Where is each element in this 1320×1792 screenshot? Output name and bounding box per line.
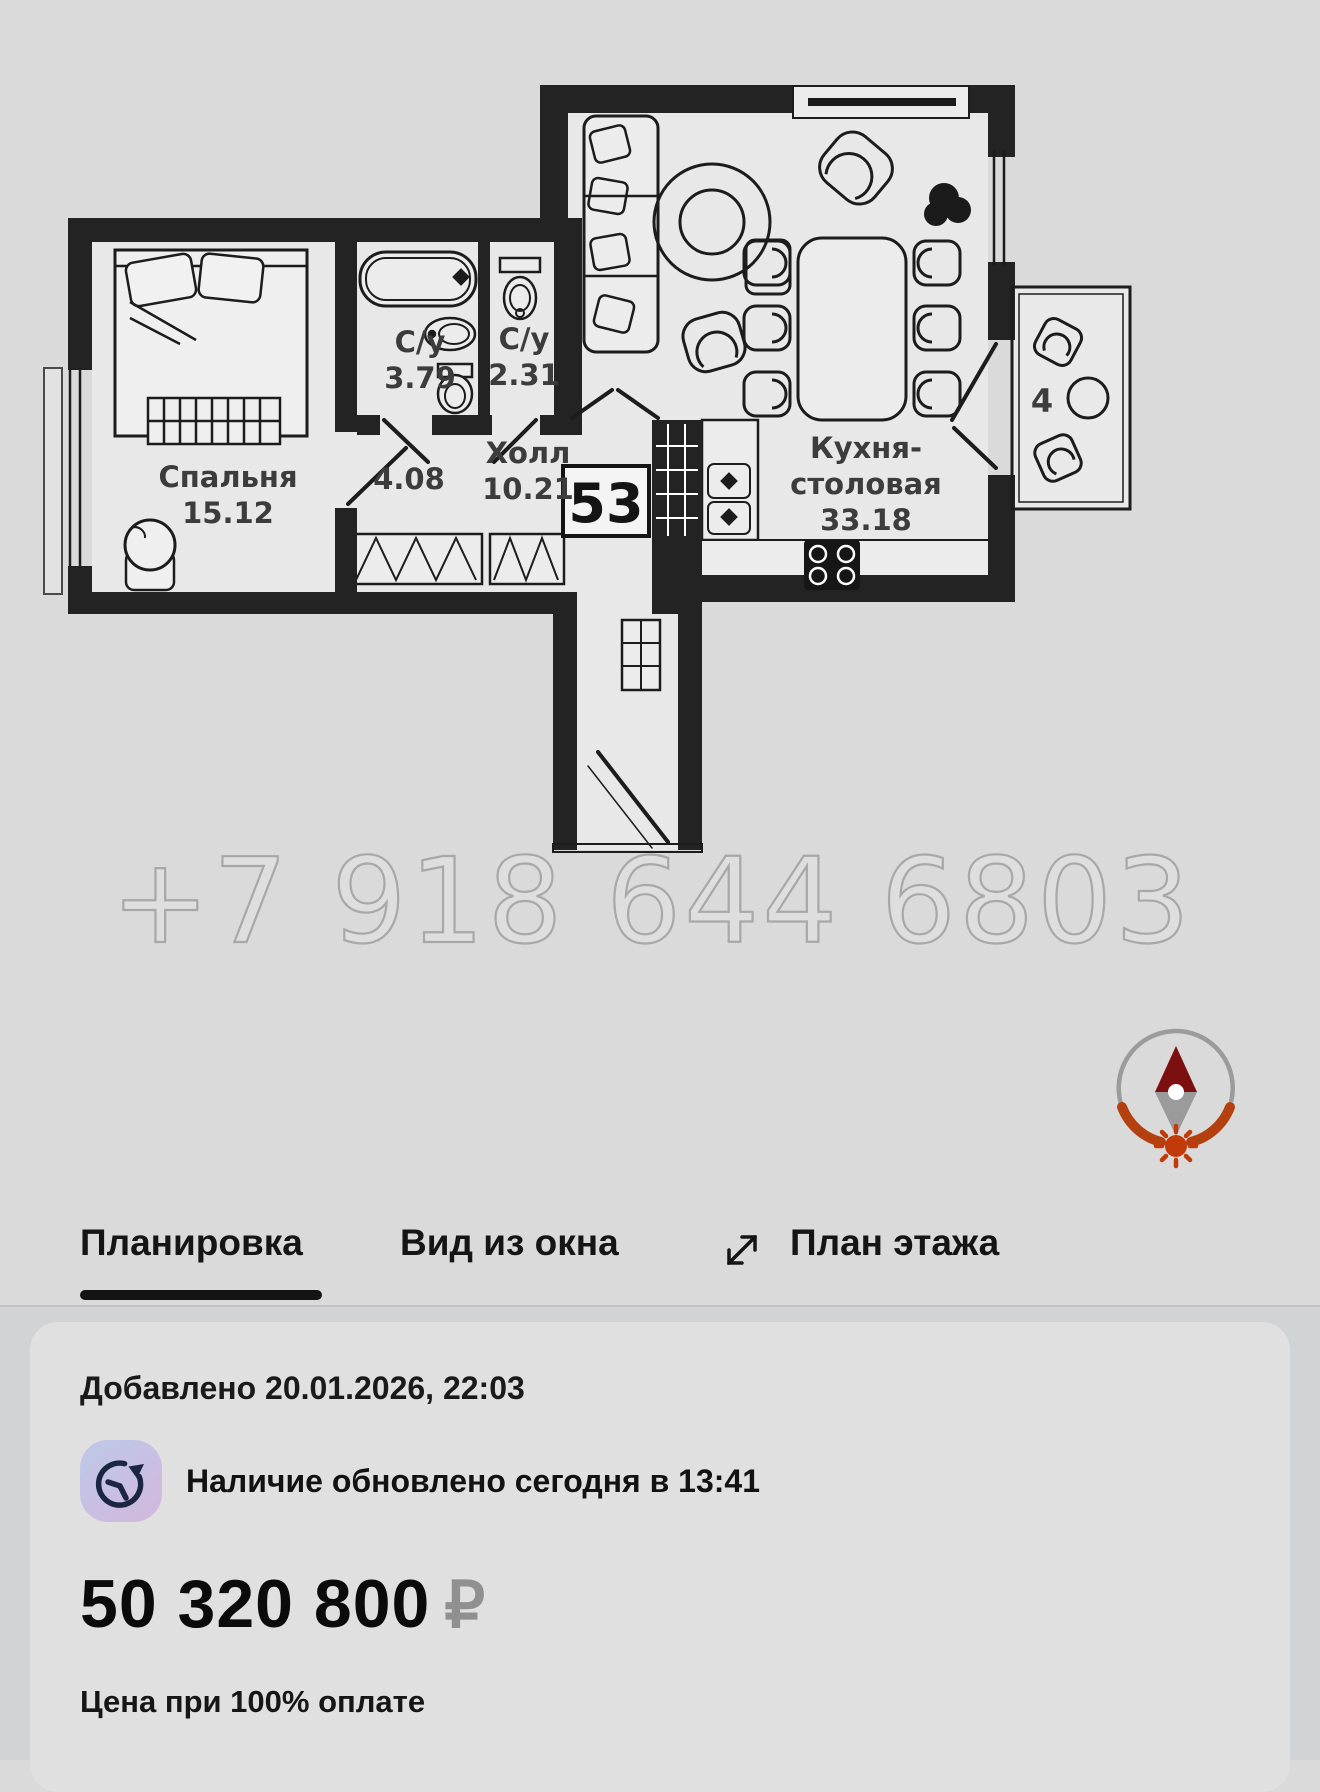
bath1-label: С/у bbox=[395, 325, 446, 359]
compass-icon bbox=[1119, 1031, 1233, 1166]
unit-number-box: 53 bbox=[563, 466, 649, 536]
price-info-card: Добавлено 20.01.2026, 22:03 Наличие обно… bbox=[30, 1322, 1290, 1792]
kitchen-label-2: столовая bbox=[790, 467, 942, 501]
kitchen-area: 33.18 bbox=[820, 503, 912, 537]
bedroom-area: 15.12 bbox=[182, 496, 274, 530]
sun-icon bbox=[1156, 1126, 1196, 1166]
availability-row: Наличие обновлено сегодня в 13:41 bbox=[80, 1440, 760, 1522]
bathtub bbox=[360, 252, 476, 306]
price-row: 50 320 800₽ bbox=[80, 1565, 485, 1643]
wardrobe bbox=[352, 534, 564, 584]
hall-area: 10.21 bbox=[482, 472, 574, 506]
bedroom-label: Спальня bbox=[158, 460, 297, 494]
toilet-2 bbox=[500, 258, 540, 319]
tab-floor-plan[interactable]: План этажа bbox=[790, 1222, 999, 1264]
clock-refresh-icon bbox=[80, 1440, 162, 1522]
availability-text: Наличие обновлено сегодня в 13:41 bbox=[186, 1463, 760, 1500]
watermark-phone: +7 918 644 6803 bbox=[111, 832, 1193, 970]
bath2-area: 2.31 bbox=[488, 358, 560, 392]
tab-bar: Планировка Вид из окна План этажа bbox=[0, 1222, 1320, 1307]
ruble-sign: ₽ bbox=[444, 1569, 485, 1641]
unit-number: 53 bbox=[568, 472, 643, 535]
stove bbox=[804, 540, 860, 590]
availability-badge bbox=[80, 1440, 162, 1522]
tab-layout[interactable]: Планировка bbox=[80, 1222, 303, 1264]
nightstand bbox=[125, 520, 175, 590]
floor-plan-image: 53 Спальня 15.12 С/у 3.79 С/у 2.31 4.08 … bbox=[0, 0, 1320, 1180]
expand-icon[interactable] bbox=[718, 1226, 766, 1274]
listing-screen: 53 Спальня 15.12 С/у 3.79 С/у 2.31 4.08 … bbox=[0, 0, 1320, 1760]
price-note: Цена при 100% оплате bbox=[80, 1684, 425, 1720]
hall-label: Холл bbox=[486, 436, 571, 470]
tab-window-view[interactable]: Вид из окна bbox=[400, 1222, 619, 1264]
kitchen-label-1: Кухня- bbox=[810, 431, 922, 465]
added-date-text: Добавлено 20.01.2026, 22:03 bbox=[80, 1370, 525, 1407]
balcony-number: 4 bbox=[1031, 382, 1053, 420]
corridor-area: 4.08 bbox=[373, 462, 445, 496]
bed bbox=[115, 250, 307, 444]
active-tab-underline bbox=[80, 1290, 322, 1300]
price-value: 50 320 800 bbox=[80, 1566, 430, 1642]
sofa bbox=[584, 116, 658, 352]
bath1-area: 3.79 bbox=[384, 361, 456, 395]
bath2-label: С/у bbox=[499, 322, 550, 356]
